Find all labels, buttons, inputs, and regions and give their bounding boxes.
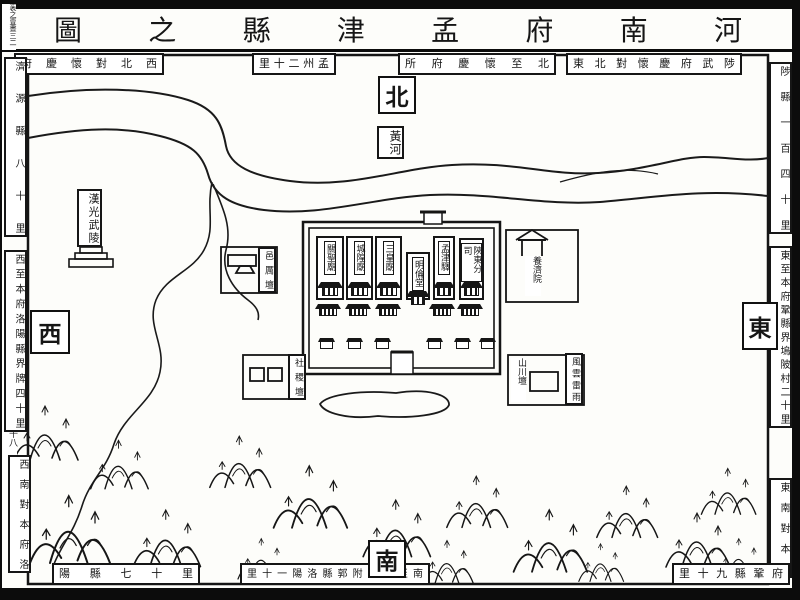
map-title: 圖之縣津孟府南河 xyxy=(18,9,778,49)
post-station: 孟津驛 xyxy=(433,236,455,300)
sheji-altar-compound xyxy=(243,355,291,399)
fengyun-altar-label: 風雲雷雨 xyxy=(565,353,583,405)
right-border-bar xyxy=(792,0,800,600)
border-label-bottom-right: 里十九縣鞏府 xyxy=(672,563,790,585)
house-icon xyxy=(428,338,441,349)
temple-chenghuang: 城隍廟 xyxy=(346,236,373,300)
hall-minglun: 明倫堂 xyxy=(406,252,430,300)
hall-minglun-plaque: 明倫堂 xyxy=(412,257,424,291)
gatehouse-icon xyxy=(378,304,398,316)
house-icon xyxy=(320,338,333,349)
border-label-right-top: 陟縣一百四十里 xyxy=(769,62,792,234)
gatehouse-icon xyxy=(348,304,368,316)
south-gate xyxy=(391,352,413,374)
gatehouse-icon xyxy=(460,304,480,316)
temple-guansheng-plaque: 關聖廟 xyxy=(324,241,336,275)
border-label-top-mid-right: 所府慶懷至北 xyxy=(398,53,556,75)
yili-altar-label: 邑厲壇 xyxy=(258,247,276,293)
house-icon xyxy=(456,338,469,349)
border-label-left-mid: 西至本府洛陽縣界牌四十里 xyxy=(4,250,27,432)
hall-icon xyxy=(408,291,428,305)
title-underline xyxy=(0,49,800,52)
top-border-bar xyxy=(0,0,800,9)
cardinal-east: 東 xyxy=(742,302,778,350)
cardinal-north: 北 xyxy=(378,76,416,114)
gatehouse-icon xyxy=(432,304,452,316)
tomb-stele-label: 漢光武陵 xyxy=(77,189,102,247)
temple-sanhuang-plaque: 三皇廟 xyxy=(383,241,395,275)
north-gate-tower xyxy=(424,212,442,224)
temple-chenghuang-plaque: 城隍廟 xyxy=(354,241,366,275)
border-label-left-top: 濟源縣八十里 xyxy=(4,57,27,237)
yellow-river-label: 黃河 xyxy=(377,126,404,159)
hall-icon xyxy=(461,282,482,296)
border-label-top-right: 東北對懷慶府武陟 xyxy=(566,53,742,75)
volume-mark: 袠之壹晝三二 xyxy=(2,4,16,50)
tomb-stele-pedestal xyxy=(69,247,113,267)
bottom-border-bar xyxy=(0,588,800,600)
hall-icon xyxy=(435,282,453,296)
woodblock-county-map: 圖之縣津孟府南河 袠之壹晝三二 二十八 府慶懷對北西 里十二州孟 所府慶懷至北 … xyxy=(0,0,800,600)
house-icon xyxy=(481,338,494,349)
temple-sanhuang: 三皇廟 xyxy=(375,236,402,300)
shanchuan-altar-label: 山川壇 xyxy=(511,358,526,402)
sheji-altar-label: 社稷壇 xyxy=(288,354,306,400)
almshouse-label: 養濟院 xyxy=(525,256,541,296)
almshouse-compound xyxy=(506,230,578,302)
pond xyxy=(320,391,449,417)
temple-guansheng: 關聖廟 xyxy=(316,236,344,300)
hall-icon xyxy=(318,282,342,296)
border-label-top-mid-left: 里十二州孟 xyxy=(252,53,336,75)
house-icon xyxy=(348,338,361,349)
house-icon xyxy=(376,338,389,349)
gatehouse-icon xyxy=(318,304,338,316)
border-label-top-left: 府慶懷對北西 xyxy=(14,53,164,75)
branch-office-plaque: 陝東分司 xyxy=(461,243,483,282)
hall-icon xyxy=(377,282,400,296)
branch-office: 陝東分司 xyxy=(459,238,484,300)
left-border-line xyxy=(0,9,2,600)
hall-icon xyxy=(348,282,371,296)
cardinal-south: 南 xyxy=(368,540,406,578)
cardinal-west: 西 xyxy=(30,310,70,354)
post-station-plaque: 孟津驛 xyxy=(438,241,450,275)
border-label-bottom-left: 陽縣七十里 xyxy=(52,563,200,585)
border-label-left-bottom: 西南對本府洛 xyxy=(8,455,31,573)
